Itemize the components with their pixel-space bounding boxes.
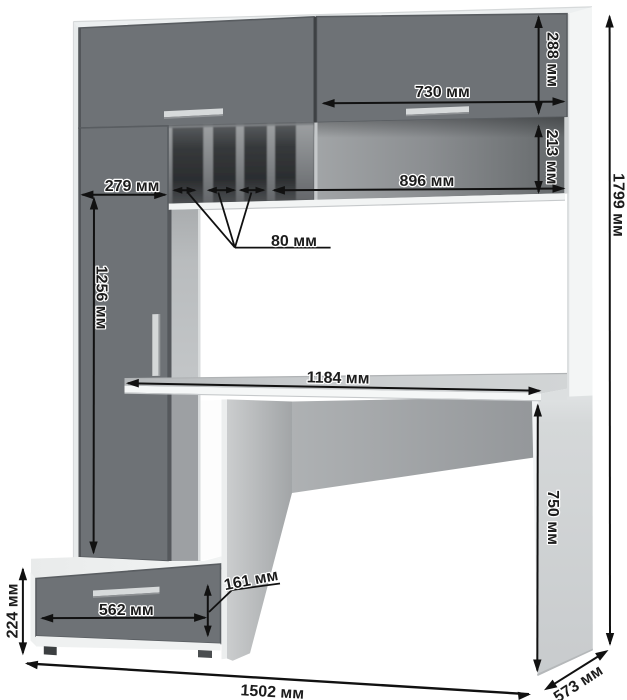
svg-text:1184 мм: 1184 мм [307,369,370,387]
svg-text:288 мм: 288 мм [544,32,561,87]
svg-text:896 мм: 896 мм [400,173,455,190]
svg-text:730 мм: 730 мм [415,84,470,101]
svg-text:1502 мм: 1502 мм [240,682,305,700]
svg-text:1256 мм: 1256 мм [93,266,110,330]
svg-text:279 мм: 279 мм [105,178,160,195]
svg-text:1799 мм: 1799 мм [610,173,627,237]
svg-text:562 мм: 562 мм [99,602,154,619]
svg-text:750 мм: 750 мм [544,490,561,545]
svg-text:224 мм: 224 мм [5,584,22,639]
svg-text:213 мм: 213 мм [543,130,560,185]
svg-text:80 мм: 80 мм [271,233,317,250]
